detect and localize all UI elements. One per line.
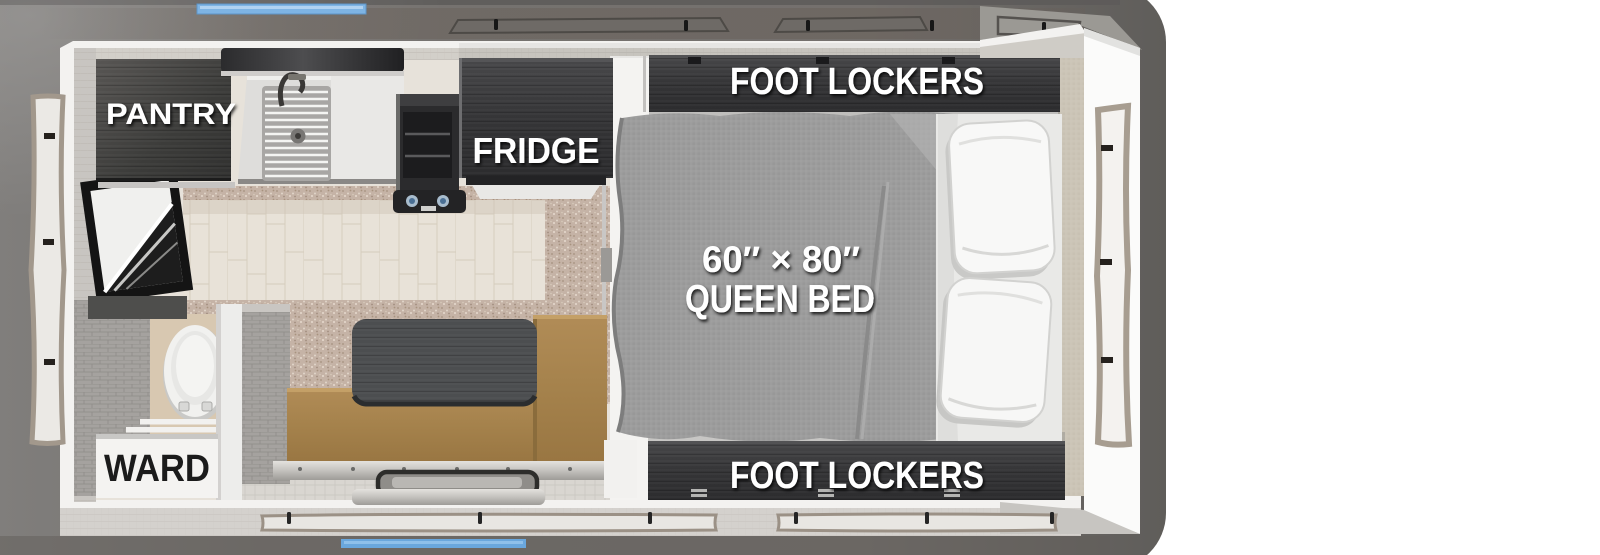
svg-text:60″ × 80″: 60″ × 80″ [702,239,860,280]
svg-text:QUEEN BED: QUEEN BED [685,278,875,321]
svg-text:FRIDGE: FRIDGE [473,130,600,171]
svg-text:WARD: WARD [104,448,210,490]
svg-text:FOOT LOCKERS: FOOT LOCKERS [730,455,984,497]
svg-text:FOOT LOCKERS: FOOT LOCKERS [730,61,984,103]
svg-text:PANTRY: PANTRY [106,98,236,131]
